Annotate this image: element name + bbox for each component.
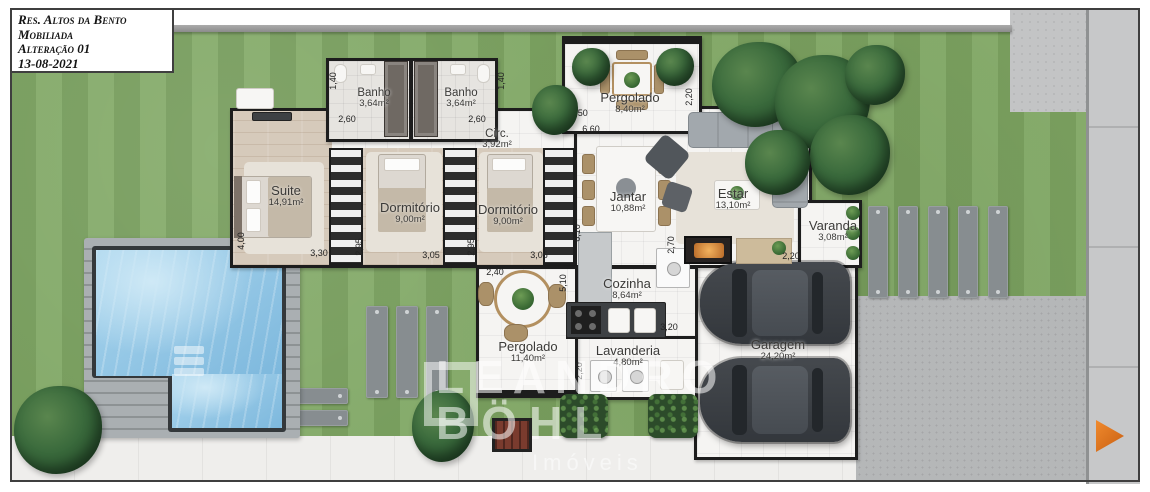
dimension-lavanderia-depth: 2,20 (574, 358, 584, 384)
shower (414, 61, 438, 137)
dimension-pergolado-bottom-width: 2,40 (482, 267, 508, 277)
driveway (856, 296, 1090, 482)
windshield (732, 365, 747, 435)
dimension-social-depth: 6,10 (572, 220, 582, 246)
title-line-2: Mobiliada (18, 28, 172, 43)
dimension-dorm1-width: 3,05 (418, 250, 444, 260)
room-name: Dormitório (380, 201, 440, 215)
pavement-top-right (1010, 10, 1088, 112)
room-area: 9,00m² (478, 217, 538, 227)
burner (589, 310, 596, 317)
dimension-pergolado-bottom-depth: 5,10 (558, 270, 568, 296)
room-label-circ: Circ. 3,92m² (482, 128, 512, 150)
dimension-suite-depth: 4,00 (236, 228, 246, 254)
room-area: 13,10m² (716, 201, 751, 211)
pool-step (174, 357, 204, 365)
room-area: 24,20m² (751, 352, 805, 362)
paver (366, 306, 388, 398)
room-label-cozinha: Cozinha 8,64m² (603, 277, 651, 301)
burner (575, 310, 582, 317)
fire (694, 243, 724, 258)
bench (616, 50, 648, 60)
tv-console (252, 112, 292, 121)
room-area: 11,40m² (498, 354, 557, 364)
dimension-dorm2-depth: 2,95 (466, 234, 476, 260)
room-label-jantar: Jantar 10,88m² (610, 190, 646, 214)
dimension-banho2-width: 2,60 (464, 114, 490, 124)
room-name: Jantar (610, 190, 646, 204)
room-label-suite: Suite 14,91m² (269, 184, 304, 208)
paver (868, 206, 888, 298)
chair (582, 154, 595, 174)
pillow (492, 158, 526, 171)
room-area: 9,00m² (380, 215, 440, 225)
boundary-wall (156, 25, 1012, 32)
room-name: Dormitório (478, 203, 538, 217)
room-label-estar: Estar 13,10m² (716, 187, 751, 211)
paver (928, 206, 948, 298)
dimension-suite-width: 3,30 (306, 248, 332, 258)
paver (988, 206, 1008, 298)
room-label-lavanderia: Lavanderia 4,80m² (596, 344, 660, 368)
room-area: 4,80m² (596, 358, 660, 368)
room-label-pergolado-bottom: Pergolado 11,40m² (498, 340, 557, 364)
title-line-3: Alteração 01 (18, 42, 172, 57)
chair (582, 180, 595, 200)
dimension-pergolado-top-width: 6,60 (578, 124, 604, 134)
room-label-dorm1: Dormitório 9,00m² (380, 201, 440, 225)
dimension-cozinha-width: 3,20 (656, 322, 682, 332)
dimension-dorm2-width: 3,05 (526, 250, 552, 260)
wall-between-bathrooms (409, 60, 413, 140)
sink (450, 64, 466, 75)
dimension-banho1-width: 2,60 (334, 114, 360, 124)
plant (624, 72, 640, 88)
sink (360, 64, 376, 75)
room-label-varanda: Varanda 3,08m² (809, 219, 857, 243)
dimension-estar-kitchen-wall: 2,70 (666, 232, 676, 258)
pool (172, 374, 282, 428)
hedge (560, 394, 608, 438)
watermark-logo (424, 362, 478, 426)
room-area: 14,91m² (269, 198, 304, 208)
room-area: 8,40m² (600, 105, 659, 115)
burner (575, 323, 582, 330)
paver (898, 206, 918, 298)
ac-unit (236, 88, 274, 109)
plant (846, 246, 860, 260)
chair (478, 282, 494, 306)
title-line-1: Res. Altos da Bento (18, 13, 172, 28)
room-name: Varanda (809, 219, 857, 233)
pool-step (174, 346, 204, 354)
room-name: Pergolado (498, 340, 557, 354)
room-area: 10,88m² (610, 204, 646, 214)
room-name: Garagem (751, 338, 805, 352)
dimension-banho1-depth: 1,40 (328, 68, 338, 94)
floor-plan-canvas: Banho 3,64m² Banho 3,64m² Pergolado 8,40… (0, 0, 1150, 492)
chair (582, 206, 595, 226)
room-label-banho1: Banho 3,64m² (357, 87, 390, 109)
street (1086, 8, 1140, 484)
paver (958, 206, 978, 298)
room-label-pergolado-top: Pergolado 8,40m² (600, 91, 659, 115)
toilet (477, 64, 490, 83)
dimension-banho2-depth: 1,40 (496, 68, 506, 94)
pool-step (174, 368, 204, 376)
car-roof (752, 366, 808, 434)
room-name: Estar (716, 187, 751, 201)
sink (634, 308, 656, 333)
room-area: 3,64m² (357, 99, 390, 109)
room-area: 3,92m² (482, 140, 512, 150)
room-area: 3,64m² (444, 99, 477, 109)
laundry-tub (660, 360, 684, 390)
hedge (648, 394, 698, 438)
grill (492, 418, 532, 452)
burner (589, 323, 596, 330)
title-block: Res. Altos da Bento Mobiliada Alteração … (10, 8, 174, 73)
room-area: 3,08m² (809, 233, 857, 243)
dimension-pergolado-top-depth: 2,20 (684, 84, 694, 110)
room-name: Suite (269, 184, 304, 198)
rear-window (812, 368, 823, 432)
rear-window (812, 272, 823, 334)
sink (608, 308, 630, 333)
title-line-4: 13-08-2021 (18, 57, 172, 72)
plant (512, 288, 534, 310)
pillow (246, 208, 261, 232)
windshield (732, 269, 747, 337)
pillow (384, 158, 420, 171)
dimension-dorm1-depth: 2,95 (354, 234, 364, 260)
chair (658, 206, 671, 226)
room-area: 8,64m² (603, 291, 651, 301)
room-name: Lavanderia (596, 344, 660, 358)
car-roof (752, 270, 808, 336)
paver (396, 306, 418, 398)
car (700, 262, 850, 344)
room-label-banho2: Banho 3,64m² (444, 87, 477, 109)
wardrobe (543, 148, 575, 265)
pillow (246, 180, 261, 204)
room-name: Pergolado (600, 91, 659, 105)
room-label-garagem: Garagem 24,20m² (751, 338, 805, 362)
car (700, 358, 850, 442)
room-name: Cozinha (603, 277, 651, 291)
room-label-dorm2: Dormitório 9,00m² (478, 203, 538, 227)
dimension-varanda-width: 2,20 (778, 251, 804, 261)
